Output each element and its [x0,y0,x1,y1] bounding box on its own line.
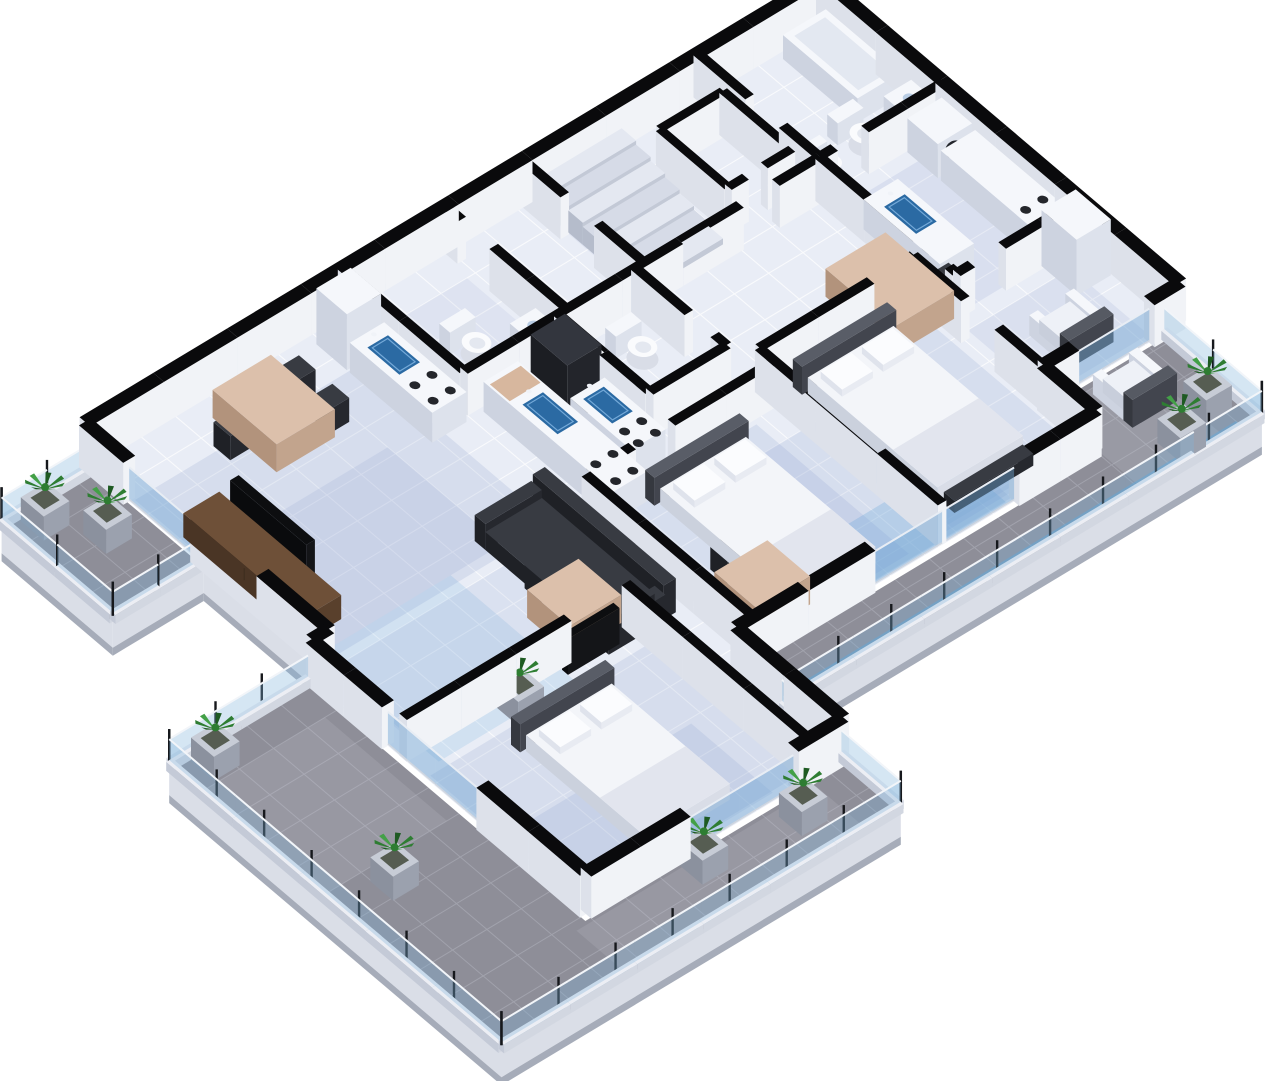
floor-plan-render [0,0,1269,1081]
isometric-floor-plan-svg [0,0,1269,1081]
